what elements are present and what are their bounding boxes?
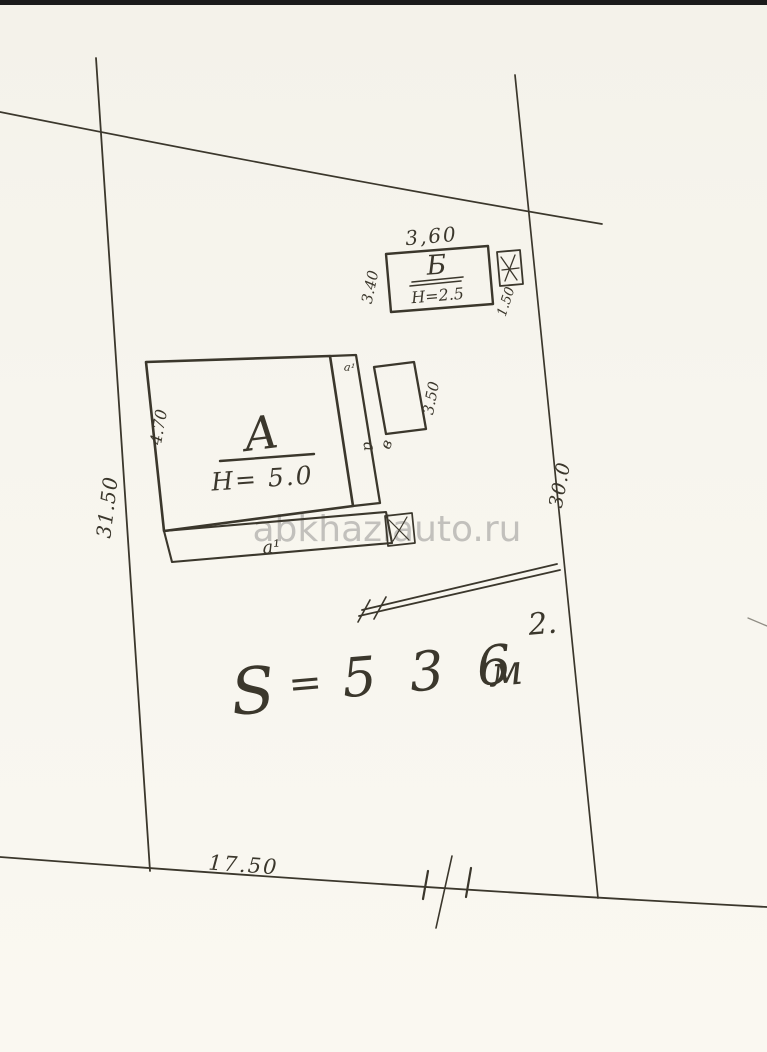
plot-boundary-top (0, 112, 602, 224)
plot-dim-bottom: 17.50 (208, 851, 280, 880)
building-a-strip-top-letter: а¹ (343, 360, 356, 374)
plot-boundary-bottom (0, 857, 767, 907)
building-b-step (497, 250, 523, 286)
building-a-annex (374, 362, 426, 434)
building-a-height: Н= 5.0 (209, 460, 314, 496)
building-a-annex-dim: 3.50 (419, 379, 443, 416)
building-a-letter: А (237, 404, 281, 462)
site-plan-drawing: abkhaziauto.ru Б Н=2.5 3,60 3.40 1.50 (0, 0, 767, 1052)
scan-top-edge (0, 0, 767, 5)
right-edge-tick (748, 618, 767, 626)
plot-dim-right: 30.0 (545, 460, 575, 510)
building-b-letter: Б (424, 249, 447, 281)
scanned-site-plan-page: abkhaziauto.ru Б Н=2.5 3,60 3.40 1.50 (0, 0, 767, 1052)
area-equals: = (287, 659, 324, 708)
building-b: Б Н=2.5 3,60 3.40 1.50 (358, 222, 523, 319)
area-s: S (228, 653, 278, 731)
building-b-dim-top: 3,60 (404, 222, 458, 250)
building-b-dim-step: 1.50 (494, 285, 519, 319)
plot-dim-left: 31.50 (91, 475, 122, 540)
area-inscription: S = 5 3 6 м 2. (226, 605, 564, 730)
building-b-height: Н=2.5 (409, 284, 464, 308)
area-superscript: 2. (526, 605, 559, 642)
building-b-dim-left: 3.40 (358, 268, 383, 305)
area-unit: м (486, 645, 525, 697)
plot-boundary-left (96, 58, 150, 871)
building-a-porch-letter: а¹ (262, 536, 282, 558)
gate-mark (423, 856, 471, 928)
building-a-strip (330, 355, 380, 506)
building-a-dim-left: 4.70 (146, 408, 171, 447)
